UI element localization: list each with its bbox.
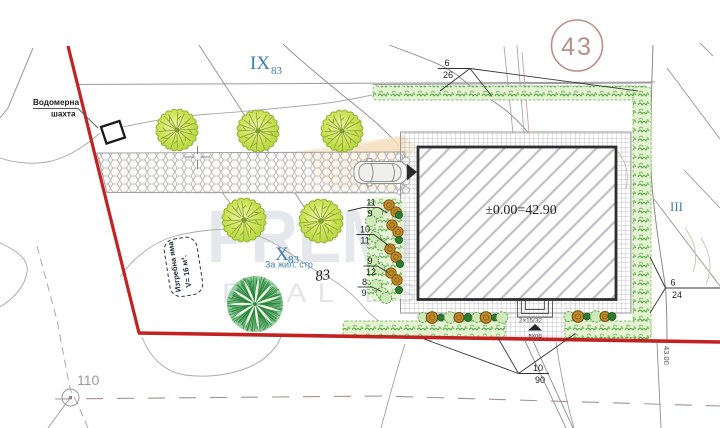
svg-text:43.00: 43.00 [662, 346, 671, 365]
svg-text:6: 6 [444, 58, 449, 68]
svg-text:12: 12 [366, 267, 376, 277]
svg-text:83: 83 [314, 267, 331, 285]
svg-text:9: 9 [361, 288, 366, 298]
svg-text:шахта: шахта [51, 110, 76, 119]
svg-text:9: 9 [367, 256, 372, 266]
svg-text:83: 83 [271, 65, 283, 77]
svg-text:8: 8 [362, 277, 367, 287]
svg-text:26: 26 [443, 70, 453, 80]
svg-text:2×15/32: 2×15/32 [519, 318, 542, 325]
svg-text:24: 24 [672, 290, 682, 300]
svg-text:110: 110 [77, 372, 100, 388]
svg-text:9: 9 [367, 209, 372, 219]
svg-text:За жил. стр: За жил. стр [265, 260, 313, 270]
svg-text:11: 11 [366, 198, 375, 208]
svg-text:±0.00=42.90: ±0.00=42.90 [485, 203, 557, 218]
svg-text:90: 90 [535, 375, 545, 385]
svg-text:43: 43 [561, 33, 593, 61]
svg-text:III: III [670, 199, 683, 214]
svg-text:6: 6 [670, 278, 675, 288]
svg-text:Водомерна: Водомерна [33, 98, 79, 107]
svg-text:10: 10 [533, 363, 543, 373]
svg-text:IX: IX [250, 53, 270, 74]
svg-text:10: 10 [360, 225, 370, 235]
svg-text:11: 11 [360, 236, 369, 246]
